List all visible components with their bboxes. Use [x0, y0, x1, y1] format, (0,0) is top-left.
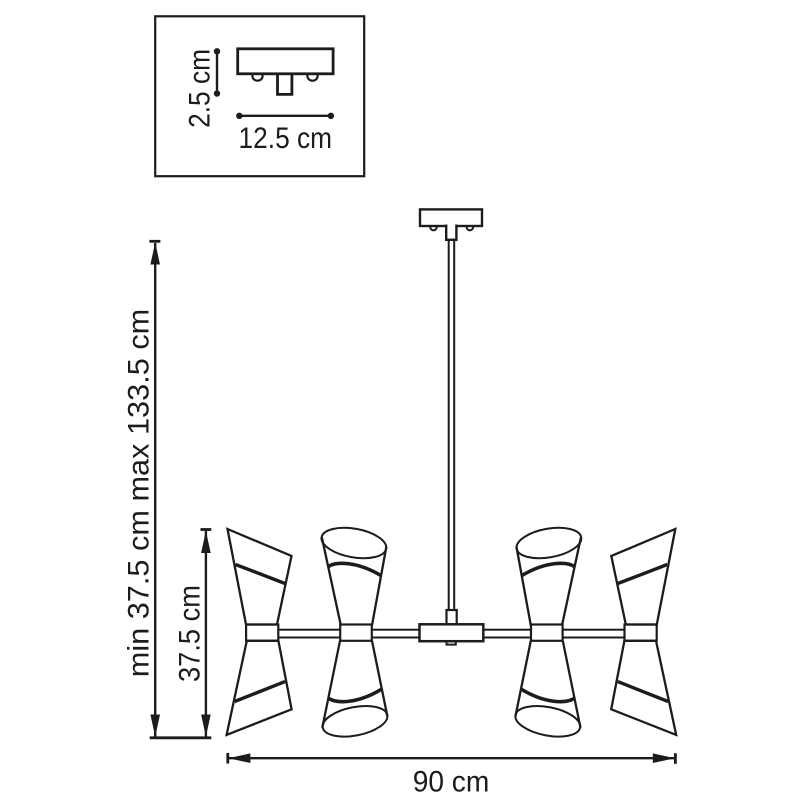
svg-text:min 37.5 cm max 133.5 cm: min 37.5 cm max 133.5 cm [123, 309, 156, 677]
svg-text:90 cm: 90 cm [413, 765, 490, 798]
svg-text:12.5 cm: 12.5 cm [239, 122, 333, 155]
svg-text:2.5 cm: 2.5 cm [184, 49, 217, 128]
svg-text:37.5 cm: 37.5 cm [173, 585, 206, 682]
